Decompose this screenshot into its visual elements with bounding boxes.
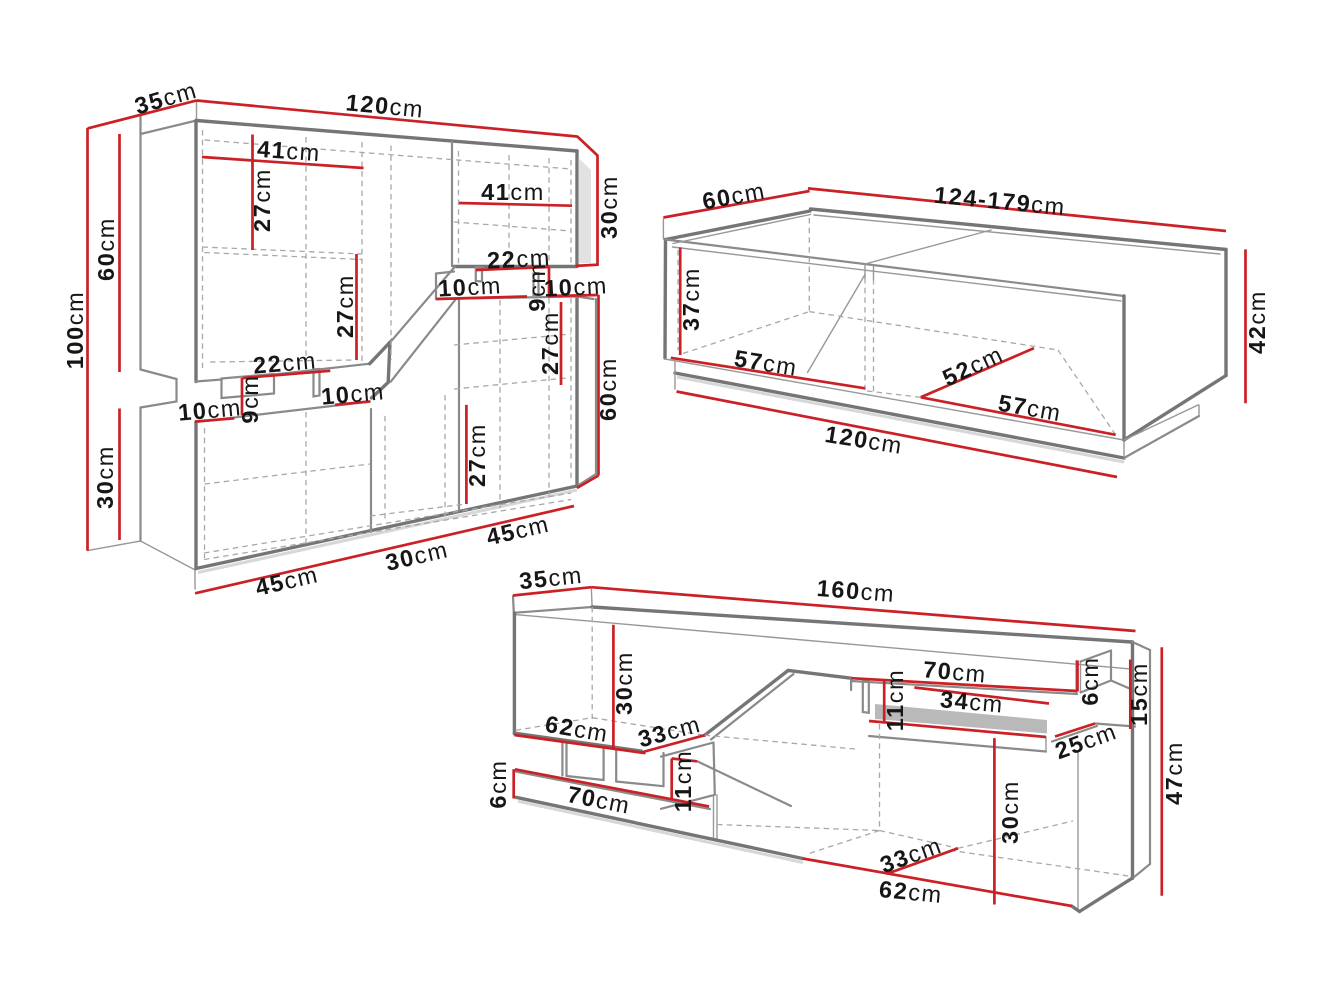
svg-text:41cm: 41cm [256, 136, 322, 166]
svg-text:47cm: 47cm [1161, 741, 1187, 805]
svg-text:6cm: 6cm [1077, 656, 1103, 705]
svg-text:27cm: 27cm [464, 423, 490, 487]
svg-text:10cm: 10cm [543, 272, 608, 301]
svg-text:30cm: 30cm [596, 175, 622, 239]
svg-text:11cm: 11cm [882, 669, 908, 732]
svg-text:42cm: 42cm [1244, 290, 1270, 354]
svg-text:37cm: 37cm [678, 267, 704, 331]
svg-text:30cm: 30cm [997, 780, 1023, 844]
svg-text:22cm: 22cm [252, 347, 318, 378]
svg-text:27cm: 27cm [332, 274, 358, 338]
svg-text:41cm: 41cm [481, 179, 545, 205]
svg-text:30cm: 30cm [611, 651, 637, 715]
svg-text:60cm: 60cm [93, 217, 119, 281]
svg-text:11cm: 11cm [670, 750, 696, 813]
svg-text:10cm: 10cm [320, 378, 386, 409]
svg-text:30cm: 30cm [92, 445, 118, 509]
svg-text:10cm: 10cm [437, 272, 502, 301]
svg-text:70cm: 70cm [922, 656, 988, 687]
svg-text:6cm: 6cm [485, 759, 511, 808]
svg-text:15cm: 15cm [1126, 662, 1152, 726]
svg-text:60cm: 60cm [595, 357, 621, 421]
svg-text:10cm: 10cm [177, 394, 243, 425]
svg-text:27cm: 27cm [537, 311, 563, 375]
svg-text:27cm: 27cm [249, 168, 275, 232]
svg-text:100cm: 100cm [62, 291, 88, 370]
svg-text:34cm: 34cm [939, 686, 1005, 717]
